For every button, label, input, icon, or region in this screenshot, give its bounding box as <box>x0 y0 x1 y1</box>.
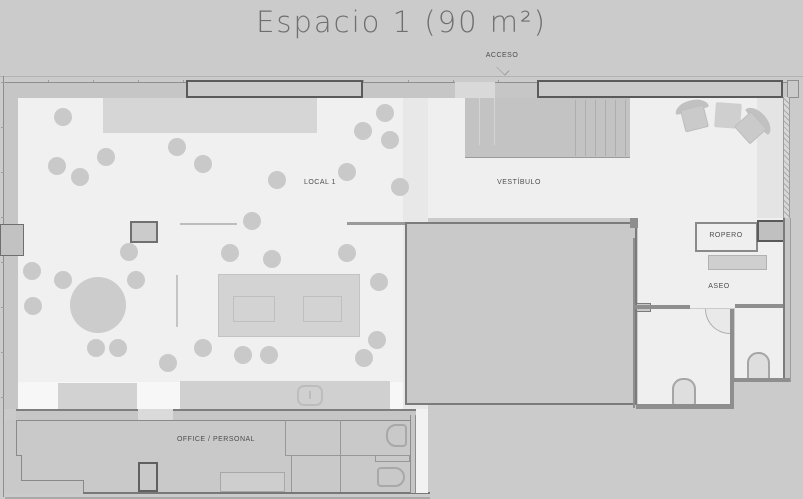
stool <box>24 297 42 315</box>
adjacent-unit-block <box>405 222 637 405</box>
stool <box>221 244 239 262</box>
office-toilet-upper-icon <box>386 424 407 447</box>
stool <box>376 104 394 122</box>
office-step-line-c <box>21 455 22 480</box>
label-office-personal: OFFICE / PERSONAL <box>166 436 266 443</box>
display-partition-v <box>176 275 178 327</box>
office-top-line <box>16 420 416 421</box>
wall-return-stub <box>630 218 638 228</box>
office-bottom-line <box>83 492 430 494</box>
left-wall-pillar <box>0 224 24 256</box>
wc-partition <box>730 309 734 409</box>
office-partition-1 <box>285 420 286 455</box>
storefront-element-left <box>186 80 363 98</box>
entrance-chevron-icon <box>496 62 509 75</box>
facade-top-line <box>0 76 803 77</box>
label-vestibulo: VESTÍBULO <box>483 179 555 186</box>
stool <box>71 168 89 186</box>
wall-segment-local <box>347 222 405 225</box>
stool <box>48 157 66 175</box>
stool <box>87 339 105 357</box>
stool <box>97 148 115 166</box>
stool <box>268 171 286 189</box>
office-partition-2 <box>340 420 341 455</box>
office-counter <box>220 472 285 492</box>
wing-left-wall-line <box>633 238 635 408</box>
ropero-closet <box>757 220 785 242</box>
stool <box>194 155 212 173</box>
stair-treads <box>566 100 628 156</box>
stool <box>354 122 372 140</box>
stool <box>159 354 177 372</box>
office-toilet-lower-icon <box>377 467 405 487</box>
square-table <box>130 221 158 243</box>
office-partition-4 <box>291 455 292 492</box>
wall-wc-left-bottom <box>636 404 733 409</box>
stool <box>54 271 72 289</box>
bar-counter-small <box>58 383 137 409</box>
floor-plan-page: Espacio 1 (90 m²) <box>0 0 803 499</box>
office-door-opening <box>138 409 173 420</box>
stool <box>120 243 138 261</box>
entry-path-lines <box>465 98 497 145</box>
stool <box>391 178 409 196</box>
display-partition-h <box>180 223 237 225</box>
office-door-leaf <box>138 462 158 492</box>
toilet-left-room <box>672 378 696 406</box>
gap-strip-right <box>416 409 428 493</box>
toilet-right-room <box>747 352 770 381</box>
stool <box>109 339 127 357</box>
stool <box>263 250 281 268</box>
label-aseo: ASEO <box>685 283 753 290</box>
armchair-left <box>675 97 712 136</box>
office-block <box>5 420 416 493</box>
office-partition-6 <box>375 455 410 462</box>
bar-counter-long <box>180 381 390 409</box>
stool <box>368 331 386 349</box>
stool <box>23 262 41 280</box>
wing-right-wall <box>783 218 791 382</box>
wall-aseo-wc-right <box>735 304 783 308</box>
label-local-1: LOCAL 1 <box>285 179 355 186</box>
label-ropero: ROPERO <box>697 232 755 239</box>
stool <box>243 212 261 230</box>
sink-icon <box>297 385 323 406</box>
office-partition-5 <box>340 455 341 492</box>
entrance-opening <box>455 82 495 98</box>
stool <box>54 108 72 126</box>
stool <box>194 339 212 357</box>
hatched-party-wall <box>783 97 790 218</box>
sink-tap <box>309 391 311 399</box>
wall-aseo-wc-left <box>635 305 690 309</box>
storefront-element-right <box>537 80 783 98</box>
page-title: Espacio 1 (90 m²) <box>0 5 803 39</box>
stool <box>260 346 278 364</box>
south-wall-band <box>16 409 416 420</box>
stool <box>370 273 388 291</box>
stool <box>338 244 356 262</box>
local-1-shaded-zone <box>103 98 317 133</box>
stool <box>127 271 145 289</box>
communal-table-inset-left <box>233 296 275 322</box>
office-step-line-a <box>16 420 17 455</box>
round-table-large <box>70 277 126 333</box>
stool <box>168 138 186 156</box>
stool <box>381 131 399 149</box>
armchair-seat <box>680 104 709 132</box>
stool <box>234 346 252 364</box>
office-step-line-d <box>21 480 83 481</box>
communal-table-inset-right <box>303 296 342 322</box>
facade-corner-piece <box>787 80 799 98</box>
aseo-vanity-counter <box>708 255 767 270</box>
stool <box>355 349 373 367</box>
label-acceso: ACCESO <box>467 52 537 59</box>
wall-wc-right-bottom <box>731 378 790 382</box>
